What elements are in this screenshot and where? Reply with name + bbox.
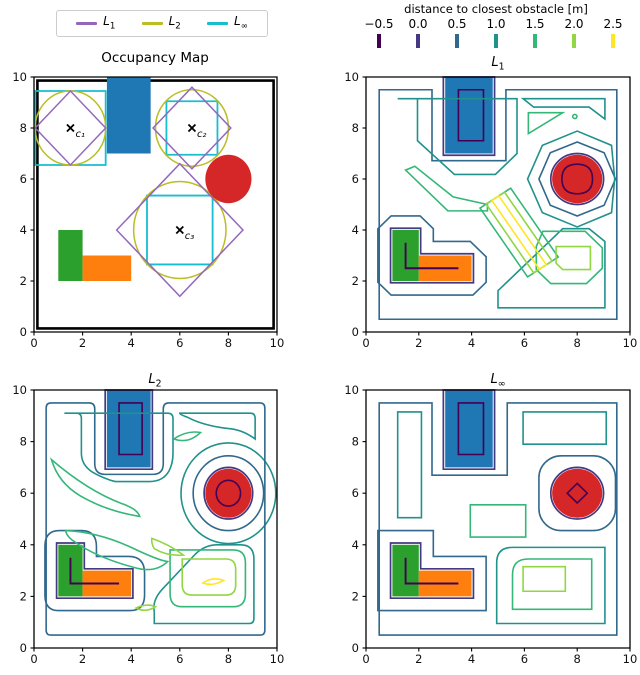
x-tick-label: 4: [468, 652, 475, 666]
y-tick-label: 0: [20, 325, 27, 339]
contour-line: [523, 99, 605, 119]
y-tick-label: 6: [352, 486, 359, 500]
x-tick-label: 8: [225, 652, 232, 666]
center-label: c₂: [197, 129, 207, 140]
contour-line: [398, 412, 422, 518]
obstacle-green-rect: [58, 230, 82, 281]
y-tick-label: 10: [344, 70, 359, 84]
contour-line: [528, 113, 562, 134]
center-label: c₁: [75, 129, 85, 140]
plot-l1: 02468100246810: [344, 70, 637, 350]
x-tick-label: 0: [30, 652, 37, 666]
x-tick-label: 2: [79, 336, 86, 350]
contour-line: [182, 559, 235, 595]
center-marker: [67, 125, 74, 132]
y-tick-label: 10: [344, 383, 359, 397]
y-tick-label: 2: [20, 589, 27, 603]
contour-line: [498, 229, 605, 308]
x-tick-label: 10: [623, 652, 638, 666]
x-tick-label: 6: [521, 336, 528, 350]
obstacle-red-circle: [205, 469, 251, 518]
obstacle-red-circle: [552, 469, 602, 518]
x-tick-label: 8: [574, 652, 581, 666]
x-tick-label: 0: [362, 652, 369, 666]
y-tick-label: 6: [352, 172, 359, 186]
x-tick-label: 4: [128, 652, 135, 666]
x-tick-label: 2: [415, 652, 422, 666]
x-tick-label: 10: [623, 336, 638, 350]
y-tick-label: 4: [20, 538, 27, 552]
axes-frame: [34, 390, 277, 648]
y-tick-label: 2: [352, 274, 359, 288]
plot-area: [45, 390, 276, 635]
y-tick-label: 4: [20, 223, 27, 237]
y-tick-label: 2: [20, 274, 27, 288]
y-tick-label: 6: [20, 486, 27, 500]
obstacle-red-circle: [552, 155, 602, 203]
y-tick-label: 0: [20, 641, 27, 655]
obstacle-blue-rect: [107, 77, 151, 154]
x-tick-label: 2: [415, 336, 422, 350]
x-tick-label: 4: [468, 336, 475, 350]
x-tick-label: 6: [176, 652, 183, 666]
obstacle-blue-rect: [107, 390, 151, 467]
y-tick-label: 2: [352, 589, 359, 603]
x-tick-label: 10: [270, 336, 285, 350]
contour-line: [492, 196, 546, 269]
x-tick-label: 2: [79, 652, 86, 666]
y-tick-label: 0: [352, 641, 359, 655]
y-tick-label: 0: [352, 325, 359, 339]
center-marker: [176, 227, 183, 234]
center-marker: [188, 125, 195, 132]
y-tick-label: 4: [352, 538, 359, 552]
plot-area: [378, 390, 617, 635]
contour-line: [523, 567, 565, 592]
y-tick-label: 4: [352, 223, 359, 237]
plot-area: [35, 77, 273, 328]
center-label: c₃: [185, 231, 195, 242]
boundary-wall: [37, 81, 273, 329]
x-tick-label: 8: [225, 336, 232, 350]
y-tick-label: 8: [352, 435, 359, 449]
contour-line: [180, 413, 255, 439]
x-tick-label: 6: [176, 336, 183, 350]
obstacle-orange-rect: [83, 256, 132, 282]
axes-frame: [34, 77, 277, 332]
contour-line: [573, 114, 577, 118]
x-tick-label: 0: [362, 336, 369, 350]
x-tick-label: 6: [521, 652, 528, 666]
y-tick-label: 10: [12, 70, 27, 84]
figure-canvas: c₁c₂c₃0246810024681002468100246810024681…: [0, 0, 640, 675]
contour-line: [523, 412, 606, 444]
x-tick-label: 4: [128, 336, 135, 350]
contour-line: [152, 538, 184, 555]
contour-line: [470, 505, 525, 537]
obstacle-red-circle: [205, 155, 251, 203]
x-tick-label: 0: [30, 336, 37, 350]
plot-occupancy-map: c₁c₂c₃02468100246810: [12, 70, 284, 350]
contour-line: [406, 166, 488, 211]
obstacle-blue-rect: [445, 77, 493, 154]
contour-line: [556, 247, 590, 270]
y-tick-label: 8: [352, 121, 359, 135]
y-tick-label: 10: [12, 383, 27, 397]
y-tick-label: 8: [20, 121, 27, 135]
x-tick-label: 8: [574, 336, 581, 350]
obstacle-blue-rect: [445, 390, 493, 467]
y-tick-label: 6: [20, 172, 27, 186]
plot-l2: 02468100246810: [12, 383, 284, 666]
y-tick-label: 8: [20, 435, 27, 449]
contour-line: [174, 432, 201, 441]
plot-area: [378, 77, 617, 319]
plot-linf: 02468100246810: [344, 383, 637, 666]
x-tick-label: 10: [270, 652, 285, 666]
contour-line: [203, 579, 224, 584]
